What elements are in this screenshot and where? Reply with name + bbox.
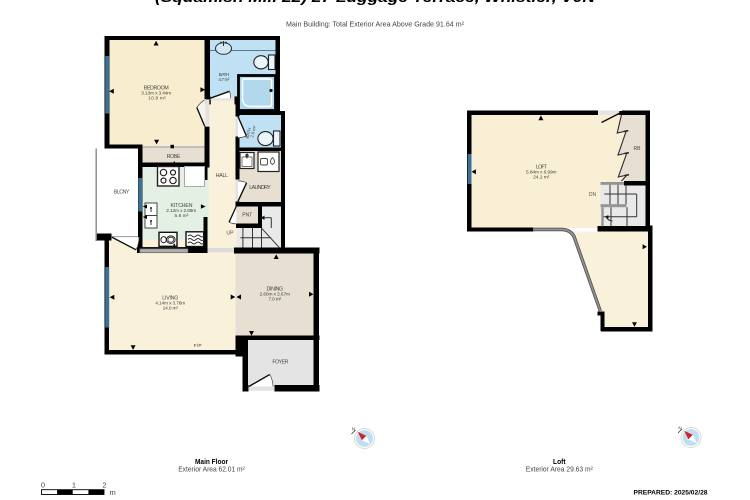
svg-text:Exterior Area 29.63 m²: Exterior Area 29.63 m² <box>526 466 594 473</box>
svg-text:BLCNY: BLCNY <box>114 190 130 196</box>
svg-text:Main Building: Total Exterior: Main Building: Total Exterior Area Above… <box>286 20 464 29</box>
svg-text:F/P: F/P <box>194 343 202 349</box>
svg-text:Main Floor: Main Floor <box>195 457 228 466</box>
svg-text:0: 0 <box>41 481 45 490</box>
svg-text:HALL: HALL <box>216 173 228 179</box>
svg-text:1: 1 <box>72 481 76 490</box>
svg-text:24.2 m²: 24.2 m² <box>533 174 549 180</box>
svg-text:Exterior Area 62.01 m²: Exterior Area 62.01 m² <box>178 466 245 473</box>
svg-text:14.0 m²: 14.0 m² <box>163 305 179 311</box>
svg-text:UP: UP <box>226 231 234 237</box>
svg-text:PREPARED: 2025/02/28: PREPARED: 2025/02/28 <box>634 489 708 496</box>
svg-text:ROBE: ROBE <box>167 154 181 160</box>
svg-text:DN: DN <box>589 192 597 198</box>
svg-text:4.7 m²: 4.7 m² <box>218 77 229 82</box>
svg-text:5.6 m²: 5.6 m² <box>175 213 189 219</box>
svg-text:7.0 m²: 7.0 m² <box>268 296 281 302</box>
svg-text:BEDROOM: BEDROOM <box>144 86 169 92</box>
svg-text:PNT: PNT <box>242 213 252 219</box>
svg-text:RB: RB <box>634 146 642 152</box>
svg-text:(Squamish Mill 22) 27 Luggage: (Squamish Mill 22) 27 Luggage Terrace, W… <box>155 0 596 5</box>
svg-text:Loft: Loft <box>553 457 566 466</box>
svg-text:FOYER: FOYER <box>272 359 288 365</box>
svg-text:m: m <box>110 488 116 497</box>
svg-text:10.8 m²: 10.8 m² <box>148 95 166 101</box>
svg-text:2: 2 <box>102 481 106 490</box>
svg-text:LAUNDRY: LAUNDRY <box>249 185 271 191</box>
